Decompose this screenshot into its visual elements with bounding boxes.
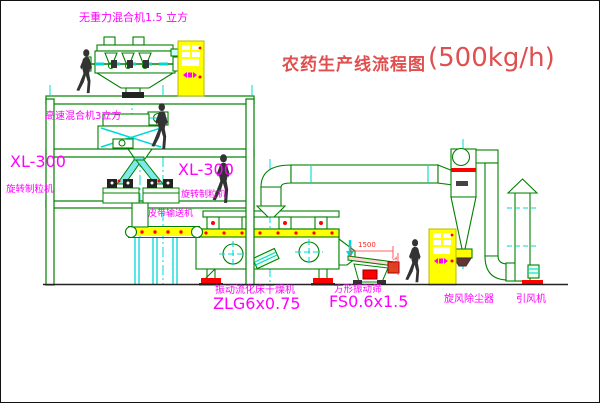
label-granulator-right-name: 旋转制粒机 [181, 191, 226, 200]
exhaust-duct [257, 165, 453, 217]
flow-diagram: 农药生产线流程图 (500kg/h) 无重力混合机1.5 立方 高速混合机3立方… [0, 0, 600, 403]
label-granulator-left-model: XL-300 [10, 154, 66, 170]
control-cabinet-top [178, 41, 204, 96]
title-capacity: (500kg/h) [428, 43, 555, 73]
label-high-speed-mixer: 高速混合机3立方 [45, 112, 121, 122]
title-text: 农药生产线流程图 [282, 43, 426, 75]
page-title: 农药生产线流程图 (500kg/h) [282, 43, 555, 75]
person-icon [405, 239, 420, 282]
control-cabinet-right [429, 229, 456, 285]
discharge-chute [132, 203, 148, 227]
label-belt-conveyor: 皮带输送机 [148, 210, 193, 219]
label-dryer-model: ZLG6x0.75 [213, 296, 301, 312]
induced-draft-fan [506, 179, 543, 285]
label-granulator-right-model: XL-300 [178, 162, 234, 178]
dim-sieve-length: 1500 [358, 242, 376, 249]
label-dust-collector: 旋风除尘器 [444, 295, 494, 305]
label-induced-draft-fan: 引风机 [516, 295, 546, 305]
no-gravity-mixer [86, 37, 181, 98]
belt-conveyor [126, 227, 203, 285]
fluid-bed-dryer [196, 211, 355, 286]
label-granulator-left-name: 旋转制粒机 [6, 185, 54, 195]
label-no-gravity-mixer: 无重力混合机1.5 立方 [79, 12, 188, 23]
cyclone-separator [451, 149, 508, 281]
label-sieve-model: FS0.6x1.5 [329, 294, 408, 310]
dim-sieve-outlet-height: 350 [391, 256, 398, 268]
